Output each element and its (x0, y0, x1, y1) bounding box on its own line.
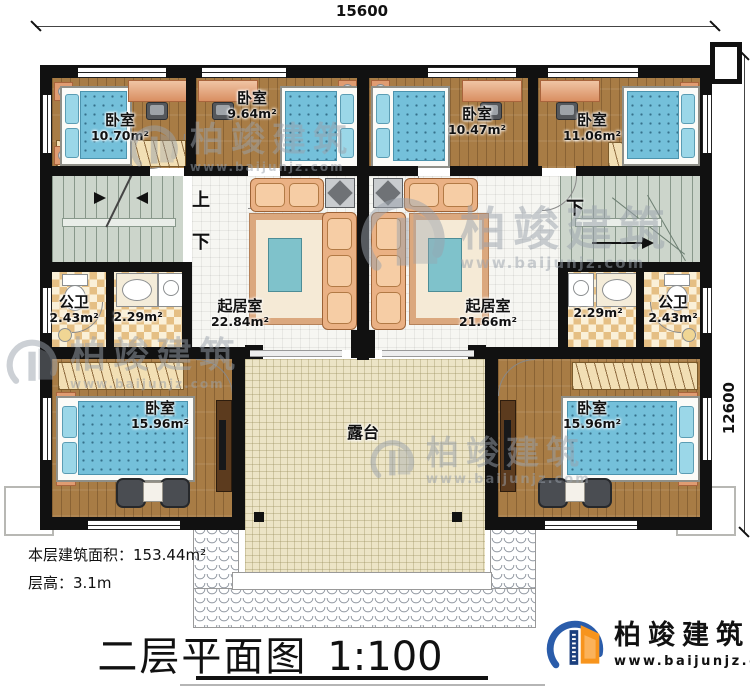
sofa (322, 212, 357, 330)
chair (582, 478, 612, 508)
wall (40, 166, 150, 176)
wall (184, 166, 248, 176)
terrace-post (452, 512, 462, 522)
wall (232, 347, 245, 517)
room-label-living-left: 起居室22.84m² (190, 298, 290, 330)
floor-plan-canvas: 15600 12600 (0, 0, 750, 690)
room-label-bedroom-tr: 卧室11.06m² (542, 112, 642, 144)
floor-area-text: 本层建筑面积：153.44m² (28, 544, 206, 565)
room-label-bedroom-tl: 卧室10.70m² (70, 112, 170, 144)
window (428, 67, 516, 78)
stair-arrow (642, 237, 654, 249)
wall (485, 347, 498, 517)
sink (602, 279, 632, 301)
tv (325, 178, 355, 208)
drawing-title: 二层平面图1:100 (0, 624, 540, 682)
shower-head (58, 328, 72, 342)
stair-down-label: 下 (192, 228, 210, 254)
roof-tiles (193, 588, 536, 628)
tv (219, 420, 226, 470)
floor-height-text: 层高：3.1m (28, 572, 111, 593)
dimension-line-right (744, 55, 745, 533)
terrace-railing (232, 572, 492, 590)
stair-railing (575, 218, 662, 227)
stair-railing (62, 218, 176, 227)
room-label-bedroom-tml: 卧室9.64m² (202, 90, 302, 122)
title-underline (196, 676, 488, 680)
coffee-table (428, 238, 462, 292)
stair-arrow (136, 192, 148, 204)
wall (40, 347, 245, 359)
desk (128, 80, 188, 102)
terrace-floor (245, 359, 485, 572)
wall (186, 65, 196, 172)
window (78, 67, 166, 78)
wall (480, 347, 712, 359)
desk (462, 80, 522, 102)
desk (540, 80, 600, 102)
window (545, 520, 637, 530)
wall (40, 262, 190, 272)
stair-arrow (94, 192, 106, 204)
window (702, 398, 712, 460)
wall (351, 330, 375, 358)
sink (122, 279, 152, 301)
wall (450, 166, 542, 176)
room-label-bedroom-br: 卧室15.96m² (542, 400, 642, 432)
wall (576, 166, 712, 176)
stair-up-label: 上 (192, 186, 210, 212)
dimension-top: 15600 (312, 2, 412, 20)
room-label-washroom-right: 2.29m² (563, 306, 633, 320)
brand-url: www.baijunjz.com (614, 654, 750, 669)
table (143, 482, 163, 502)
terrace-post (254, 512, 264, 522)
stair-down-label-right: 下 (566, 194, 584, 220)
window (42, 95, 52, 153)
window (42, 398, 52, 460)
brand-logo-icon (546, 614, 608, 676)
title-underline-shadow (180, 684, 545, 686)
dimension-right: 12600 (720, 382, 738, 434)
sofa (250, 178, 324, 212)
room-label-terrace: 露台 (323, 424, 403, 442)
window (702, 95, 712, 153)
wardrobe (58, 362, 184, 390)
title-scale: 1:100 (327, 634, 442, 680)
window (202, 67, 286, 78)
title-text: 二层平面图 (97, 634, 307, 680)
chair (538, 478, 568, 508)
room-label-bedroom-bl: 卧室15.96m² (110, 400, 210, 432)
room-label-bathroom-left: 公卫2.43m² (38, 294, 110, 326)
window (548, 67, 638, 78)
room-label-living-right: 起居室21.66m² (438, 298, 538, 330)
stair-arrow-line (592, 242, 644, 244)
party-wall (357, 65, 369, 360)
chair (160, 478, 190, 508)
washing-machine-door (163, 280, 179, 296)
room-label-washroom-left: 2.29m² (103, 310, 173, 324)
coffee-table (268, 238, 302, 292)
flue-box (710, 42, 742, 84)
tv (373, 178, 403, 208)
wall (528, 65, 538, 172)
wall (280, 166, 357, 176)
room-label-bathroom-right: 公卫2.43m² (637, 294, 709, 326)
tv (504, 420, 511, 470)
chair (116, 478, 146, 508)
sliding-door (382, 350, 474, 357)
sliding-door (250, 350, 342, 357)
window (88, 520, 180, 530)
shower-head (682, 328, 696, 342)
wall (369, 166, 418, 176)
brand-name: 柏竣建筑 (614, 622, 750, 649)
sofa (404, 178, 478, 212)
washing-machine-door (573, 280, 589, 296)
table (565, 482, 585, 502)
dimension-line-top (35, 26, 717, 27)
brand-logo: 柏竣建筑 www.baijunjz.com (546, 614, 750, 676)
room-label-bedroom-tmr: 卧室10.47m² (427, 106, 527, 138)
wardrobe (572, 362, 698, 390)
sofa (371, 212, 406, 330)
